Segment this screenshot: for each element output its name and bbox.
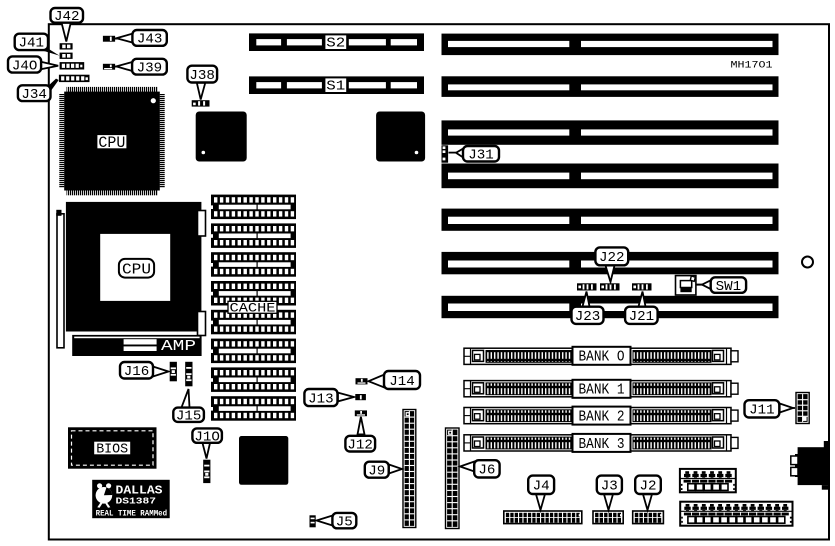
svg-text:REAL TIME RAMMed: REAL TIME RAMMed <box>96 509 168 518</box>
svg-text:S1: S1 <box>326 79 345 95</box>
svg-text:CACHE: CACHE <box>230 302 276 316</box>
svg-text:J15: J15 <box>176 410 202 425</box>
svg-text:J6: J6 <box>478 464 495 479</box>
svg-text:J22: J22 <box>599 251 625 266</box>
svg-text:BANK O: BANK O <box>579 350 625 366</box>
svg-text:BANK 2: BANK 2 <box>579 410 625 426</box>
svg-text:J12: J12 <box>347 439 373 454</box>
svg-text:J2: J2 <box>640 480 657 495</box>
svg-text:CPU: CPU <box>122 262 151 278</box>
svg-text:AMP: AMP <box>161 339 196 355</box>
svg-text:S2: S2 <box>326 36 345 52</box>
svg-text:BANK 1: BANK 1 <box>579 383 625 399</box>
svg-text:J43: J43 <box>137 33 163 48</box>
svg-text:DS1387: DS1387 <box>116 495 157 506</box>
svg-text:J5: J5 <box>336 515 353 530</box>
svg-text:J4: J4 <box>533 480 550 495</box>
svg-text:BANK 3: BANK 3 <box>579 437 625 453</box>
svg-text:J39: J39 <box>137 62 163 77</box>
svg-text:J3: J3 <box>601 480 618 495</box>
svg-text:BIOS: BIOS <box>96 443 128 458</box>
svg-text:J1O: J1O <box>194 430 220 445</box>
svg-text:J13: J13 <box>308 392 334 407</box>
svg-text:J41: J41 <box>19 37 45 52</box>
svg-text:J34: J34 <box>21 88 47 103</box>
svg-text:J21: J21 <box>629 310 655 325</box>
svg-text:MH17O1: MH17O1 <box>731 60 773 72</box>
svg-text:J16: J16 <box>124 365 150 380</box>
svg-text:J31: J31 <box>468 149 494 164</box>
svg-text:J42: J42 <box>54 10 80 25</box>
svg-text:J38: J38 <box>189 69 215 84</box>
svg-text:J4O: J4O <box>12 59 37 74</box>
svg-text:CPU: CPU <box>98 134 125 152</box>
svg-text:J9: J9 <box>368 465 385 480</box>
svg-text:J14: J14 <box>389 375 415 390</box>
svg-text:SW1: SW1 <box>716 280 742 295</box>
svg-text:J11: J11 <box>749 404 775 419</box>
svg-text:J23: J23 <box>575 310 601 325</box>
